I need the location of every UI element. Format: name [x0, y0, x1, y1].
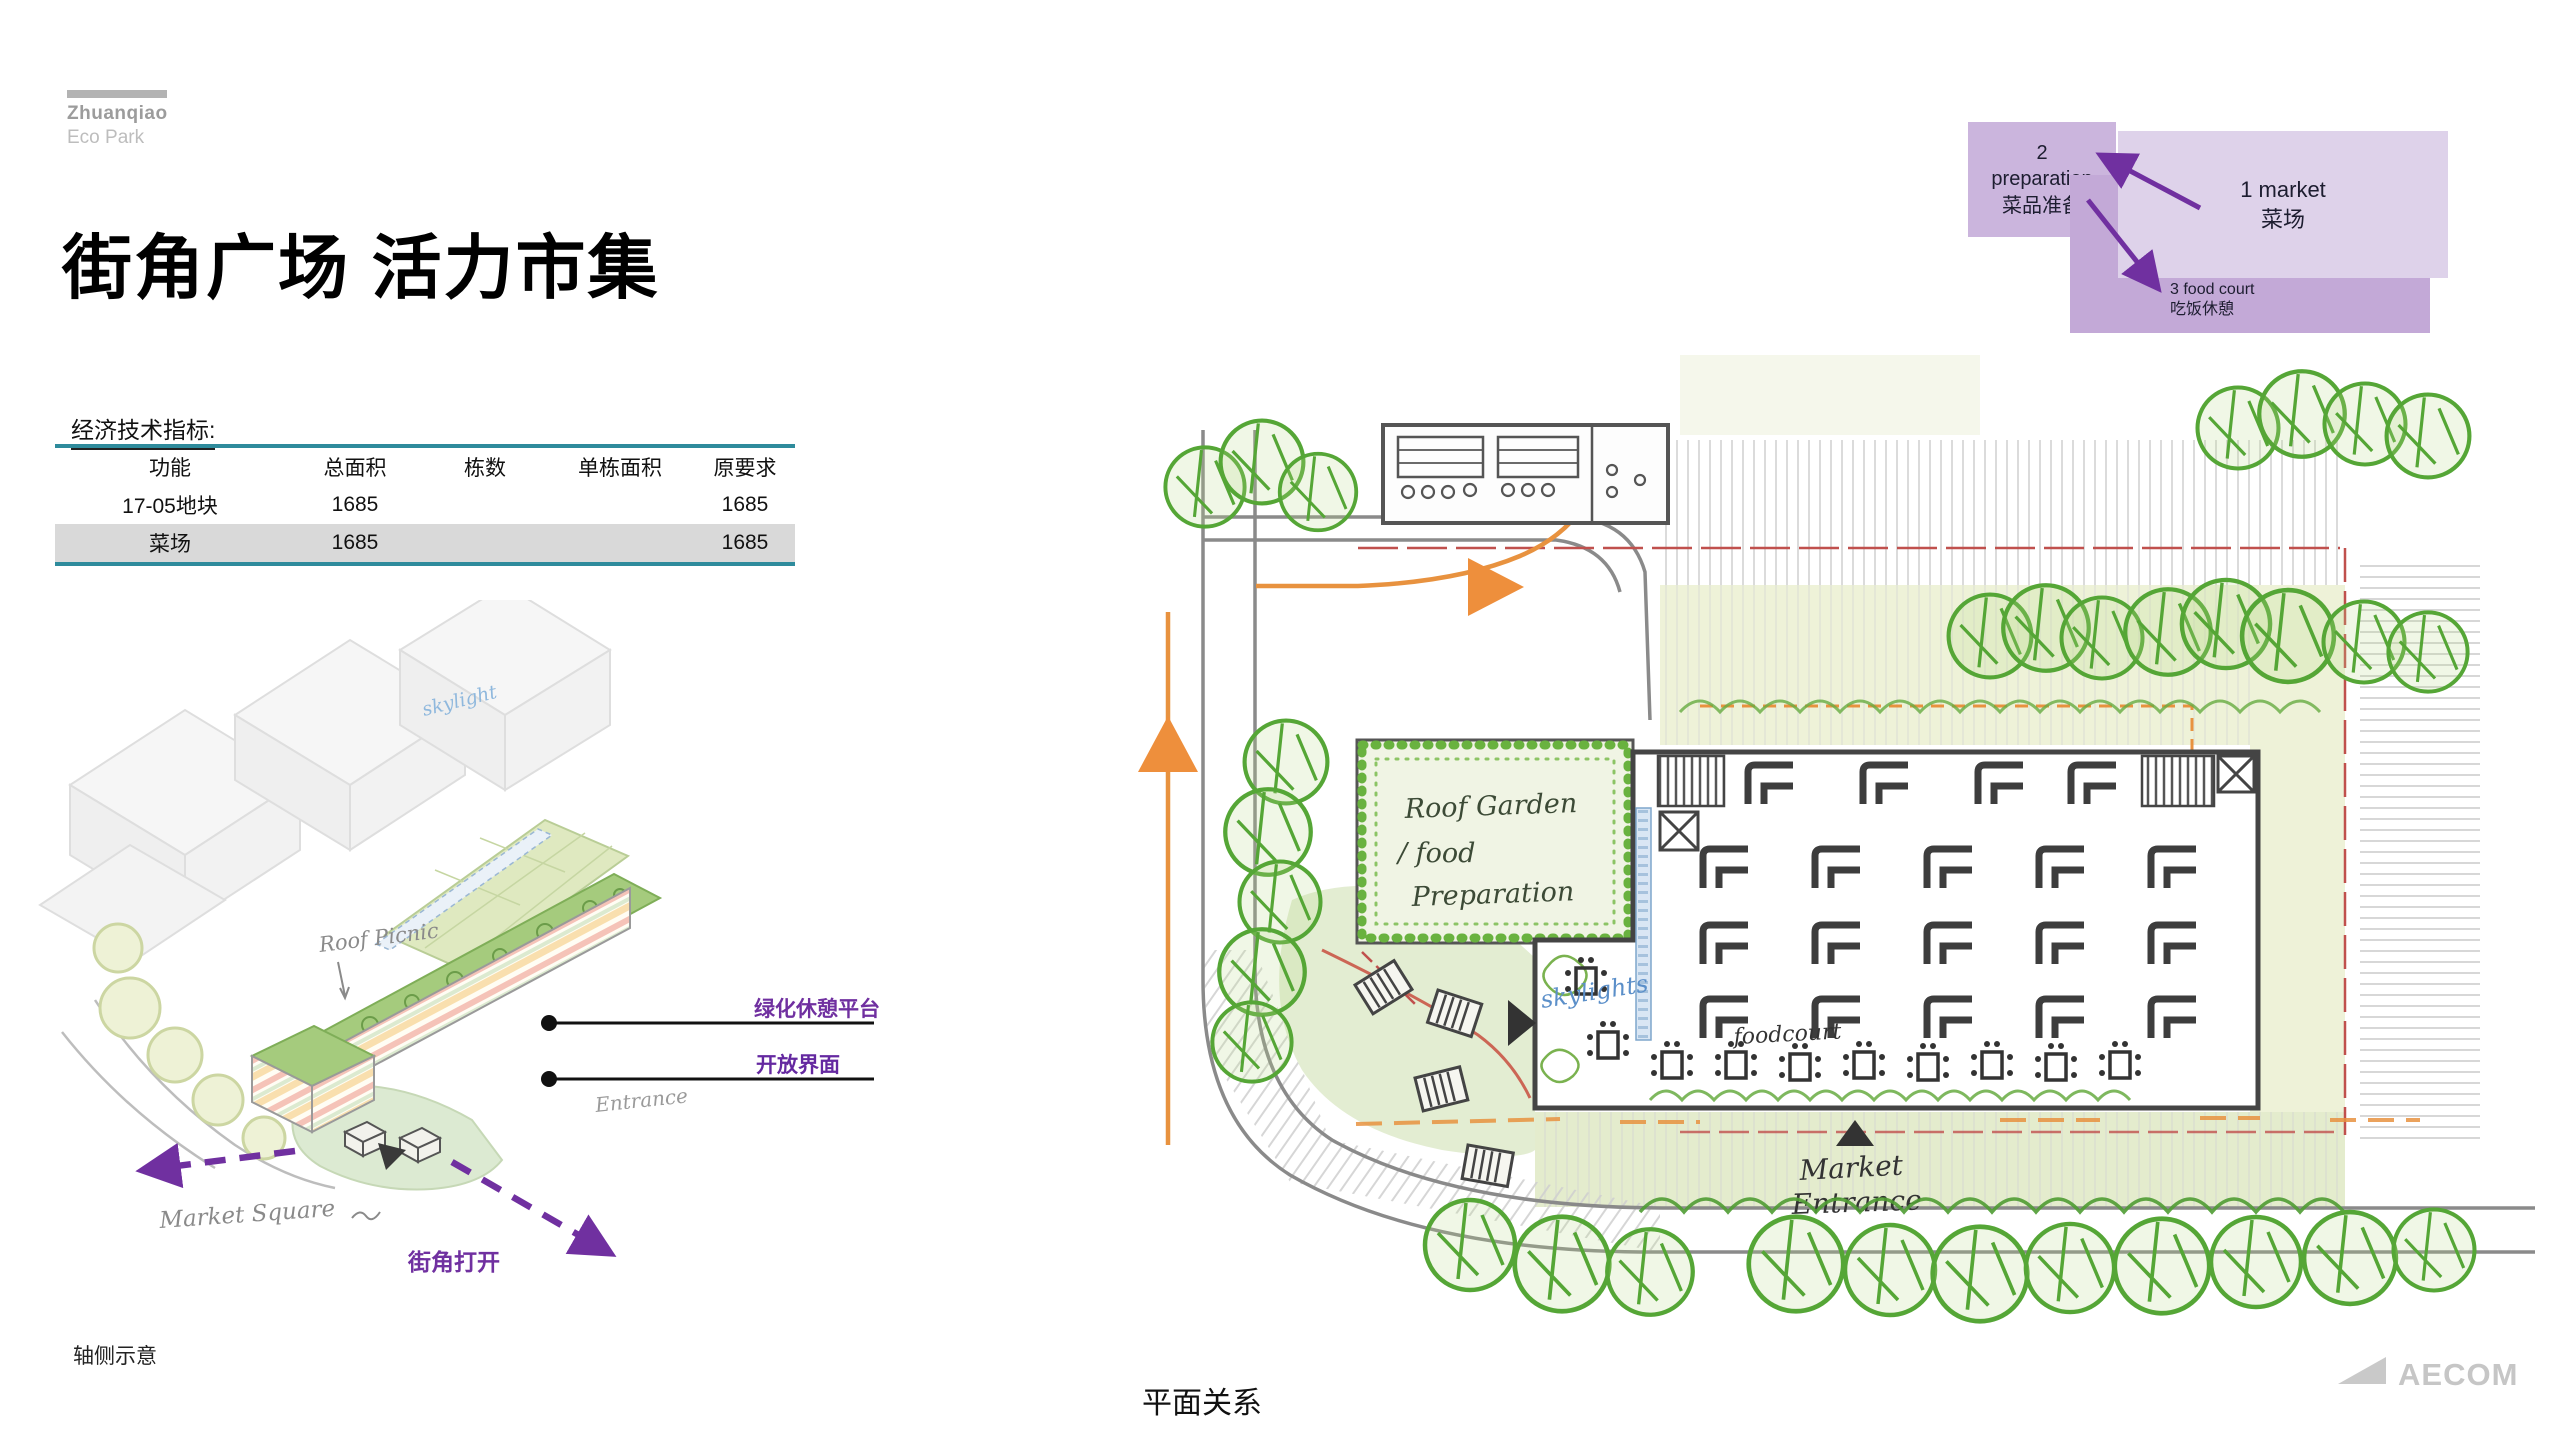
table-header-row: 功能 总面积 栋数 单栋面积 原要求 — [55, 448, 795, 486]
concept-box2-number: 2 — [2036, 140, 2047, 166]
brand-logo: AECOM — [2336, 1348, 2546, 1393]
col-header: 单栋面积 — [545, 452, 695, 482]
label-green-platform: 绿化休憩平台 — [754, 997, 880, 1021]
concept-box3-label-en: 3 food court — [2170, 280, 2255, 300]
north-buildings — [1383, 425, 1668, 523]
market-entrance-note-2: Entrance — [1790, 1183, 1922, 1221]
concept-box-market: 1 market 菜场 — [2118, 131, 2448, 278]
market-building-axon — [252, 820, 660, 1132]
logo-bar — [67, 90, 167, 98]
small-trees — [94, 924, 285, 1159]
axonometric-sketch: Roof Picnic skylight Entrance Market Squ… — [0, 600, 940, 1300]
spec-table: 功能 总面积 栋数 单栋面积 原要求 17-05地块 1685 1685 菜场 … — [55, 444, 795, 566]
orange-arrow-north — [1138, 716, 1198, 772]
col-header: 总面积 — [285, 452, 425, 482]
page-title: 街角广场 活力市集 — [62, 212, 659, 313]
col-header: 原要求 — [695, 452, 795, 482]
plan-sketch: Roof Garden / food Preparation — [1100, 330, 2560, 1390]
roof-garden-note-1: Roof Garden — [1403, 788, 1578, 825]
market-square-note: Market Square — [158, 1196, 336, 1234]
col-header: 功能 — [55, 452, 285, 482]
market-entrance-note-1: Market — [1798, 1149, 1905, 1187]
logo-subtitle: Eco Park — [67, 127, 144, 149]
cell: 1685 — [695, 531, 795, 555]
col-header: 栋数 — [425, 452, 545, 482]
leader-platform: 绿化休憩平台 — [541, 997, 880, 1031]
cell: 1685 — [285, 493, 425, 517]
brand-triangle — [2338, 1357, 2386, 1384]
cell: 菜场 — [55, 528, 285, 558]
axon-caption: 轴侧示意 — [73, 1340, 157, 1370]
logo-name: Zhuanqiao — [67, 103, 168, 125]
leader-interface: 开放界面 — [541, 1053, 874, 1087]
table-row: 17-05地块 1685 1685 — [55, 486, 795, 524]
brand-text: AECOM — [2398, 1357, 2518, 1392]
market-hall: foodcourt skylights — [1535, 752, 2258, 1108]
roof-garden-note-2: / food — [1395, 838, 1475, 869]
cell: 17-05地块 — [55, 490, 285, 520]
concept-box1-label-cn: 菜场 — [2261, 205, 2305, 234]
concept-box1-label-en: 1 market — [2240, 175, 2326, 204]
label-corner-open: 街角打开 — [407, 1249, 500, 1275]
roof-garden-note-3: Preparation — [1410, 876, 1575, 913]
roof-picnic-arrow — [338, 962, 349, 998]
entrance-note: Entrance — [593, 1083, 689, 1117]
roof-garden-block: Roof Garden / food Preparation — [1357, 740, 1633, 943]
concept-box3-label-cn: 吃饭休憩 — [2170, 300, 2255, 320]
label-open-interface: 开放界面 — [756, 1053, 840, 1077]
plan-caption: 平面关系 — [1142, 1378, 1262, 1422]
cell: 1685 — [285, 531, 425, 555]
cell: 1685 — [695, 493, 795, 517]
market-square-tick — [352, 1212, 380, 1219]
table-row: 菜场 1685 1685 — [55, 524, 795, 562]
